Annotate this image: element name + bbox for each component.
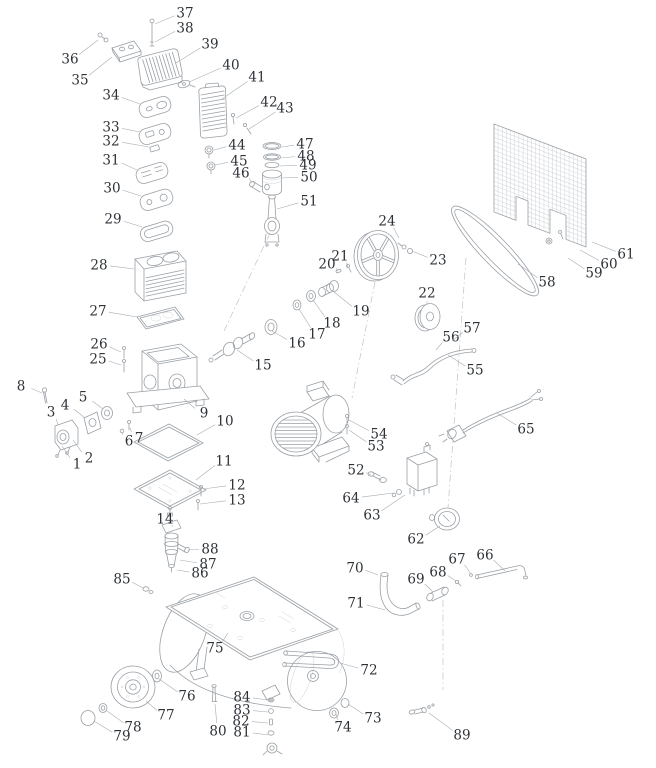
leader-line-60 bbox=[580, 250, 599, 261]
part-label-56: 56 bbox=[442, 330, 459, 346]
part-screws-36 bbox=[98, 33, 108, 42]
part-label-77: 77 bbox=[157, 708, 174, 724]
part-label-42: 42 bbox=[260, 95, 277, 111]
leader-line-85 bbox=[132, 582, 143, 588]
part-label-27: 27 bbox=[89, 304, 106, 320]
part-valve-plate-31 bbox=[134, 161, 169, 186]
part-label-11: 11 bbox=[215, 454, 232, 470]
leader-line-49 bbox=[280, 165, 297, 166]
leader-line-48 bbox=[281, 157, 295, 158]
part-cylinder-head-41 bbox=[199, 83, 227, 138]
leader-line-59 bbox=[568, 258, 584, 269]
part-label-6: 6 bbox=[125, 434, 134, 450]
part-label-73: 73 bbox=[364, 711, 381, 727]
leader-line-61 bbox=[592, 242, 616, 251]
part-label-19: 19 bbox=[352, 304, 369, 320]
leader-line-83 bbox=[253, 711, 268, 712]
part-valve-plate-33-32 bbox=[137, 122, 172, 152]
part-label-87: 87 bbox=[199, 557, 216, 573]
leader-line-42 bbox=[236, 105, 259, 118]
leader-line-28 bbox=[110, 266, 134, 269]
part-label-68: 68 bbox=[429, 565, 446, 581]
part-label-79: 79 bbox=[113, 729, 130, 745]
leader-line-43 bbox=[249, 112, 275, 129]
part-label-70: 70 bbox=[346, 561, 363, 577]
part-piston-50 bbox=[263, 170, 282, 195]
part-crankcase-9 bbox=[127, 344, 209, 413]
part-pressure-switch-63-64 bbox=[392, 443, 437, 497]
leader-line-66 bbox=[494, 560, 505, 571]
leader-line-55 bbox=[448, 355, 465, 366]
leader-line-89 bbox=[429, 713, 453, 731]
leader-line-37 bbox=[155, 16, 175, 24]
part-label-84: 84 bbox=[233, 690, 250, 706]
part-label-18: 18 bbox=[323, 316, 340, 332]
part-wheel-77 bbox=[111, 666, 155, 708]
leader-line-50 bbox=[282, 177, 298, 178]
part-label-21: 21 bbox=[331, 249, 348, 265]
leader-line-44 bbox=[214, 147, 226, 150]
leader-line-17 bbox=[299, 309, 311, 328]
part-label-3: 3 bbox=[47, 405, 56, 421]
leader-line-23 bbox=[412, 251, 428, 257]
leader-line-82 bbox=[252, 722, 268, 723]
leader-line-53 bbox=[349, 430, 367, 442]
leader-line-33 bbox=[122, 128, 140, 132]
leader-line-65 bbox=[497, 413, 516, 425]
leader-line-7 bbox=[130, 428, 132, 432]
leader-line-35 bbox=[89, 57, 112, 75]
part-label-33: 33 bbox=[102, 120, 119, 136]
leader-line-70 bbox=[366, 570, 378, 575]
part-label-62: 62 bbox=[407, 532, 424, 548]
part-label-16: 16 bbox=[288, 336, 305, 352]
leader-line-76 bbox=[159, 679, 178, 692]
part-label-25: 25 bbox=[89, 352, 106, 368]
part-motor-pulley-22 bbox=[415, 304, 440, 332]
part-label-61: 61 bbox=[617, 247, 634, 263]
part-label-9: 9 bbox=[200, 406, 209, 422]
leader-line-38 bbox=[155, 31, 175, 42]
leader-line-31 bbox=[121, 163, 137, 170]
part-label-41: 41 bbox=[248, 70, 265, 86]
part-label-14: 14 bbox=[156, 512, 173, 528]
part-label-67: 67 bbox=[448, 552, 465, 568]
part-head-gasket-29 bbox=[139, 219, 175, 243]
leader-line-62 bbox=[426, 526, 440, 535]
leader-line-6 bbox=[122, 433, 123, 435]
part-crankcase-bolts-26-25 bbox=[123, 347, 126, 373]
part-label-15: 15 bbox=[254, 358, 271, 374]
part-cylinder-28 bbox=[135, 251, 186, 301]
part-gasket-34 bbox=[137, 95, 172, 120]
leader-line-73 bbox=[348, 704, 363, 714]
part-plate-35 bbox=[112, 41, 141, 62]
part-base-gasket-10 bbox=[134, 424, 203, 461]
part-label-63: 63 bbox=[363, 508, 380, 524]
exploded-parts-diagram: 1234567891011121314151617181920212223242… bbox=[0, 0, 656, 768]
part-head-cover-39 bbox=[138, 49, 182, 90]
part-label-39: 39 bbox=[201, 37, 218, 53]
leader-line-45 bbox=[215, 162, 228, 165]
part-oil-fill-8 bbox=[42, 388, 47, 403]
part-label-88: 88 bbox=[201, 542, 218, 558]
part-label-55: 55 bbox=[466, 363, 483, 379]
leader-line-19 bbox=[334, 292, 352, 306]
part-label-36: 36 bbox=[61, 52, 78, 68]
leader-line-8 bbox=[31, 389, 42, 393]
part-label-31: 31 bbox=[102, 153, 119, 169]
part-label-50: 50 bbox=[300, 170, 317, 186]
part-label-8: 8 bbox=[17, 379, 26, 395]
leader-line-64 bbox=[362, 493, 393, 497]
leader-line-87 bbox=[180, 560, 197, 563]
leader-line-29 bbox=[124, 221, 142, 227]
part-nuts-44-45 bbox=[205, 146, 215, 174]
part-flywheel-bolt-23 bbox=[398, 243, 413, 254]
part-head-bolt-37-38 bbox=[150, 19, 154, 46]
part-ring-79 bbox=[81, 711, 95, 726]
leader-line-86 bbox=[177, 570, 189, 572]
leader-line-77 bbox=[146, 701, 157, 710]
part-label-40: 40 bbox=[222, 58, 239, 74]
part-label-28: 28 bbox=[90, 258, 107, 274]
part-label-57: 57 bbox=[463, 321, 480, 337]
part-cylinder-gasket-27 bbox=[137, 307, 184, 329]
part-label-52: 52 bbox=[347, 463, 364, 479]
part-label-76: 76 bbox=[178, 689, 195, 705]
part-label-29: 29 bbox=[104, 212, 121, 228]
part-label-64: 64 bbox=[342, 491, 359, 507]
part-washer-17 bbox=[293, 300, 301, 310]
leader-line-27 bbox=[109, 312, 137, 317]
part-bolts-67-68 bbox=[455, 574, 472, 586]
part-label-71: 71 bbox=[347, 596, 364, 612]
part-label-60: 60 bbox=[600, 257, 617, 273]
part-label-7: 7 bbox=[135, 431, 144, 447]
part-label-38: 38 bbox=[176, 21, 193, 37]
leader-line-13 bbox=[200, 501, 226, 504]
leader-line-39 bbox=[176, 48, 200, 63]
part-flywheel-24 bbox=[354, 231, 399, 282]
leader-line-36 bbox=[79, 40, 98, 55]
part-drain-fitting-89 bbox=[408, 704, 434, 715]
part-label-1: 1 bbox=[73, 457, 82, 473]
part-label-30: 30 bbox=[103, 181, 120, 197]
leader-line-30 bbox=[123, 190, 141, 196]
leader-line-26 bbox=[109, 347, 121, 352]
part-motor bbox=[271, 381, 349, 462]
part-washer-76 bbox=[153, 670, 162, 682]
part-connecting-rod-51 bbox=[265, 195, 280, 246]
part-label-26: 26 bbox=[90, 337, 107, 353]
part-sight-glass-5 bbox=[102, 407, 113, 420]
part-label-58: 58 bbox=[538, 275, 555, 291]
leader-line-68 bbox=[448, 576, 456, 581]
part-label-80: 80 bbox=[209, 724, 226, 740]
part-label-12: 12 bbox=[228, 478, 245, 494]
part-label-35: 35 bbox=[71, 73, 88, 89]
leader-line-15 bbox=[237, 350, 253, 361]
part-motor-bolts-53-54 bbox=[346, 415, 349, 435]
part-key-20-screw-21 bbox=[336, 265, 351, 274]
part-label-37: 37 bbox=[176, 6, 193, 22]
part-label-32: 32 bbox=[102, 134, 119, 150]
leader-line-78 bbox=[107, 711, 124, 723]
leader-line-81 bbox=[253, 733, 268, 735]
part-wrist-pin-46 bbox=[248, 180, 262, 192]
leader-line-3 bbox=[56, 419, 58, 425]
leader-line-69 bbox=[425, 584, 433, 592]
leader-line-40 bbox=[189, 68, 221, 82]
part-head-bolts-42-43 bbox=[231, 113, 251, 134]
part-plug-85 bbox=[143, 587, 153, 594]
part-wire-55 bbox=[391, 349, 476, 386]
part-label-54: 54 bbox=[370, 427, 387, 443]
leader-line-5 bbox=[92, 401, 103, 409]
part-ring-78 bbox=[99, 704, 107, 713]
part-label-75: 75 bbox=[206, 641, 223, 657]
leader-line-11 bbox=[196, 465, 215, 480]
part-label-44: 44 bbox=[228, 138, 245, 154]
part-piston-rings-47-48-49 bbox=[263, 143, 281, 168]
part-label-43: 43 bbox=[276, 101, 293, 117]
part-label-22: 22 bbox=[418, 286, 435, 302]
part-oil-sight-assembly-1-2-3 bbox=[55, 420, 78, 457]
part-seal-18 bbox=[307, 291, 316, 302]
part-nipple-52 bbox=[368, 472, 387, 483]
part-label-72: 72 bbox=[360, 663, 377, 679]
part-label-89: 89 bbox=[453, 728, 470, 744]
part-label-10: 10 bbox=[216, 414, 233, 430]
part-label-24: 24 bbox=[378, 214, 395, 230]
leader-line-79 bbox=[94, 721, 112, 732]
part-gauge-62 bbox=[430, 508, 460, 530]
part-label-65: 65 bbox=[517, 422, 534, 438]
part-crankshaft-15 bbox=[209, 332, 256, 362]
part-bolts-6-7 bbox=[120, 421, 130, 433]
leader-line-47 bbox=[282, 145, 294, 147]
leader-line-25 bbox=[109, 361, 121, 365]
parts-diagram-page: 1234567891011121314151617181920212223242… bbox=[0, 0, 656, 768]
part-label-13: 13 bbox=[228, 493, 245, 509]
leader-line-12 bbox=[203, 486, 226, 489]
part-label-46: 46 bbox=[232, 166, 249, 182]
part-label-51: 51 bbox=[300, 194, 317, 210]
leader-line-4 bbox=[74, 409, 85, 418]
part-label-85: 85 bbox=[113, 572, 130, 588]
leader-line-10 bbox=[197, 425, 215, 435]
part-belt-guard-59-60-61 bbox=[494, 124, 586, 247]
leader-line-54 bbox=[349, 420, 369, 431]
part-label-4: 4 bbox=[61, 398, 70, 414]
part-label-34: 34 bbox=[102, 88, 119, 104]
part-label-23: 23 bbox=[429, 253, 446, 269]
leader-line-71 bbox=[367, 605, 385, 610]
part-label-69: 69 bbox=[407, 572, 424, 588]
leader-line-63 bbox=[381, 495, 405, 511]
part-label-74: 74 bbox=[334, 720, 351, 736]
part-bearing-16 bbox=[265, 320, 277, 335]
leader-line-16 bbox=[272, 331, 287, 340]
leader-line-18 bbox=[313, 300, 325, 317]
part-label-66: 66 bbox=[476, 548, 493, 564]
part-label-2: 2 bbox=[85, 451, 94, 467]
part-base-plate-11 bbox=[134, 470, 206, 509]
leader-line-80 bbox=[215, 704, 217, 723]
leader-line-34 bbox=[122, 97, 140, 104]
part-plate-4 bbox=[84, 412, 101, 434]
leader-line-51 bbox=[277, 203, 298, 209]
part-valve-plate-30 bbox=[138, 187, 174, 212]
part-sleeve-19 bbox=[319, 281, 339, 297]
part-label-5: 5 bbox=[79, 390, 88, 406]
